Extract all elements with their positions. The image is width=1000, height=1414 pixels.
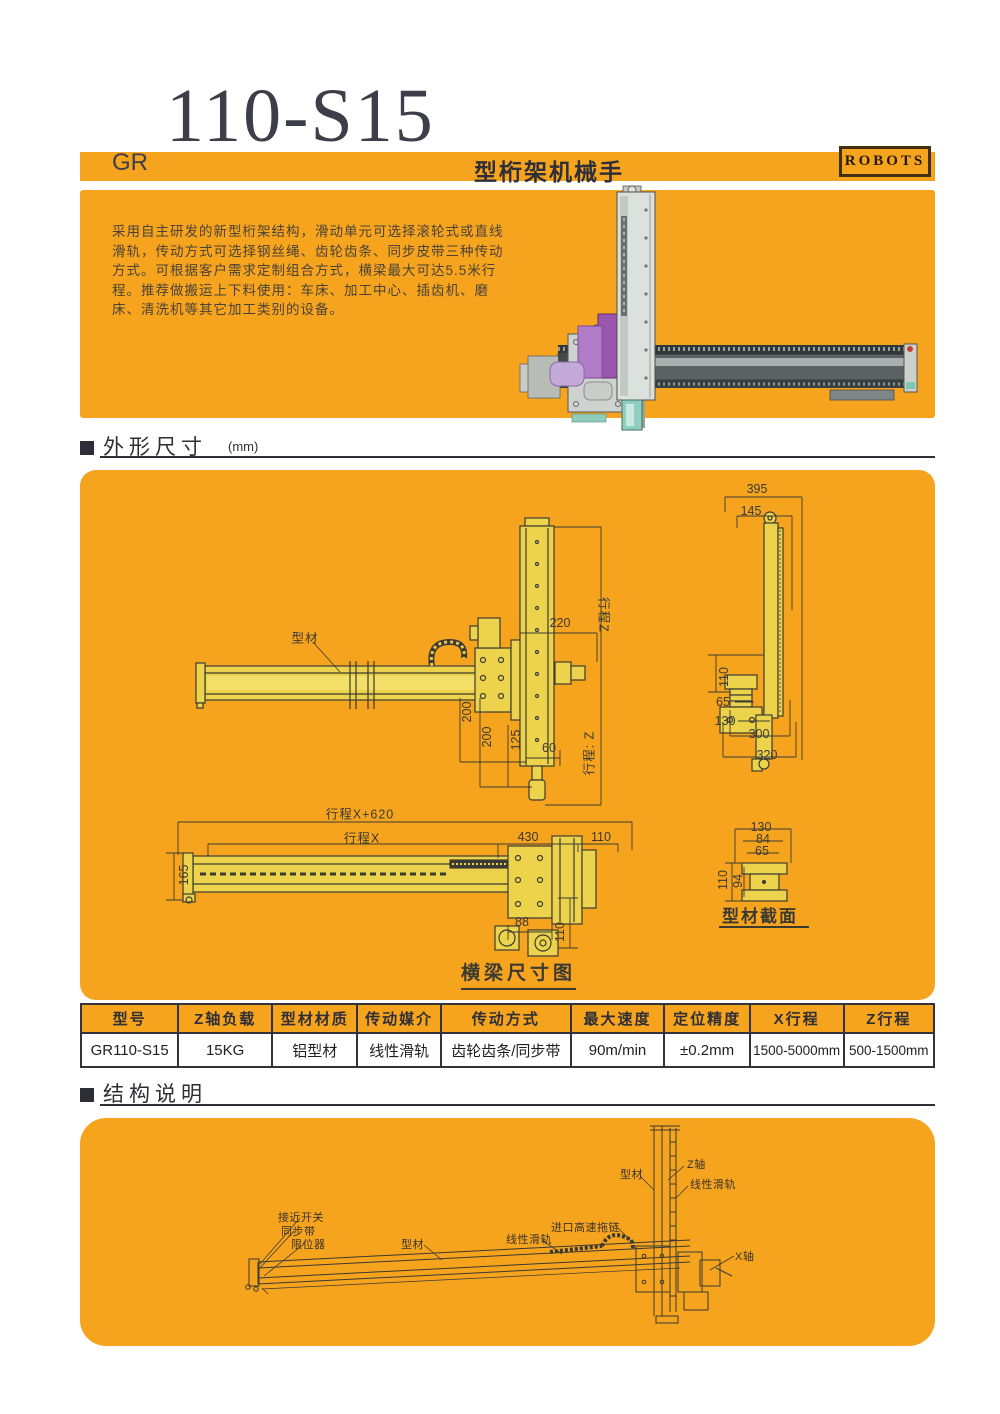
brand-prefix: GR [112,149,148,177]
side-dim-65: 65 [716,695,730,709]
spec-value-drive-type: 齿轮齿条/同步带 [441,1033,571,1067]
xsec-dim-110: 110 [716,870,730,890]
spec-value-drive-medium: 线性滑轨 [357,1033,441,1067]
xsec-dim-65: 65 [755,844,769,858]
section-divider [100,1104,935,1106]
cross-section-label: 型材截面 [722,902,798,927]
spec-header-z-load: Z轴负载 [178,1004,272,1033]
xsec-dim-94: 94 [731,874,745,888]
side-dim-395: 395 [747,482,768,496]
top-dim-110: 110 [591,830,611,844]
front-profile-label: 型材 [291,628,318,647]
spec-value-row: GR110-S15 15KG 铝型材 线性滑轨 齿轮齿条/同步带 90m/min… [81,1033,934,1067]
label-cable-chain: 进口高速拖链 [551,1219,620,1235]
label-profile-z: 型材 [620,1166,643,1182]
front-dim-stroke-z2: 行程: Z [579,731,598,776]
intro-line: 采用自主研发的新型桁架结构，滑动单元可选择滚轮式或直线 [112,222,532,242]
top-dim-stroke-x620: 行程X+620 [326,804,395,823]
label-x-axis: X轴 [735,1248,754,1264]
datasheet-page: 110-S15 GR 型桁架机械手 ROBOTS 采用自主研发的新型桁架结构，滑… [0,0,1000,1414]
spec-header-z-stroke: Z行程 [844,1004,934,1033]
side-dim-145: 145 [741,504,762,518]
product-type-title: 型桁架机械手 [474,153,624,187]
front-dim-125: 125 [509,730,523,751]
spec-header-drive-type: 传动方式 [441,1004,571,1033]
side-dim-300: 300 [749,727,770,741]
spec-header-model: 型号 [81,1004,178,1033]
top-dim-stroke-x: 行程X [344,828,380,847]
front-dim-60: 60 [542,741,556,755]
intro-line: 方式。可根据客户需求定制组合方式，横梁最大可达5.5米行 [112,261,532,281]
front-dim-220: 220 [550,616,571,630]
robots-logo-badge: ROBOTS [839,146,931,177]
spec-header-row: 型号 Z轴负载 型材材质 传动媒介 传动方式 最大速度 定位精度 X行程 Z行程 [81,1004,934,1033]
model-title: 110-S15 [166,78,435,154]
spec-header-accuracy: 定位精度 [664,1004,749,1033]
spec-value-x-stroke: 1500-5000mm [750,1033,844,1067]
spec-header-x-stroke: X行程 [750,1004,844,1033]
robots-logo-text: ROBOTS [845,153,926,170]
label-linear-rail-z: 线性滑轨 [690,1176,736,1192]
section-bullet [80,1088,94,1102]
spec-header-drive-medium: 传动媒介 [357,1004,441,1033]
side-dim-110: 110 [717,667,731,687]
dimension-drawing [80,470,935,1000]
product-render-image [520,186,940,440]
spec-value-max-speed: 90m/min [571,1033,665,1067]
intro-line: 滑轨，传动方式可选择钢丝绳、齿轮齿条、同步皮带三种传动 [112,242,532,262]
intro-line: 程。推荐做搬运上下料使用：车床、加工中心、插齿机、磨 [112,281,532,301]
side-dim-130: 130 [715,714,736,728]
intro-line: 床、清洗机等其它加工类别的设备。 [112,300,532,320]
top-dim-110b: 110 [553,922,567,942]
front-dim-stroke-z: 行程Z [596,597,615,633]
spec-table: 型号 Z轴负载 型材材质 传动媒介 传动方式 最大速度 定位精度 X行程 Z行程… [80,1003,935,1068]
section-unit-label: (mm) [228,439,258,454]
spec-header-max-speed: 最大速度 [571,1004,665,1033]
spec-value-z-stroke: 500-1500mm [844,1033,934,1067]
top-dim-430: 430 [518,830,539,844]
section-divider [100,456,935,458]
section-bullet [80,441,94,455]
label-linear-rail: 线性滑轨 [506,1231,552,1247]
beam-drawing-caption: 横梁尺寸图 [461,958,576,990]
spec-value-z-load: 15KG [178,1033,272,1067]
label-profile-beam: 型材 [401,1236,424,1252]
spec-header-profile-material: 型材材质 [272,1004,357,1033]
front-dim-200a: 200 [460,702,474,723]
spec-value-profile-material: 铝型材 [272,1033,357,1067]
top-dim-165: 165 [177,865,191,886]
label-z-axis: Z轴 [687,1156,706,1172]
spec-value-accuracy: ±0.2mm [664,1033,749,1067]
top-dim-88: 88 [515,915,529,929]
front-dim-200b: 200 [480,727,494,748]
intro-paragraph: 采用自主研发的新型桁架结构，滑动单元可选择滚轮式或直线 滑轨，传动方式可选择钢丝… [112,222,532,320]
spec-value-model: GR110-S15 [81,1033,178,1067]
side-dim-320: 320 [757,748,778,762]
label-limiter: 限位器 [291,1236,326,1252]
